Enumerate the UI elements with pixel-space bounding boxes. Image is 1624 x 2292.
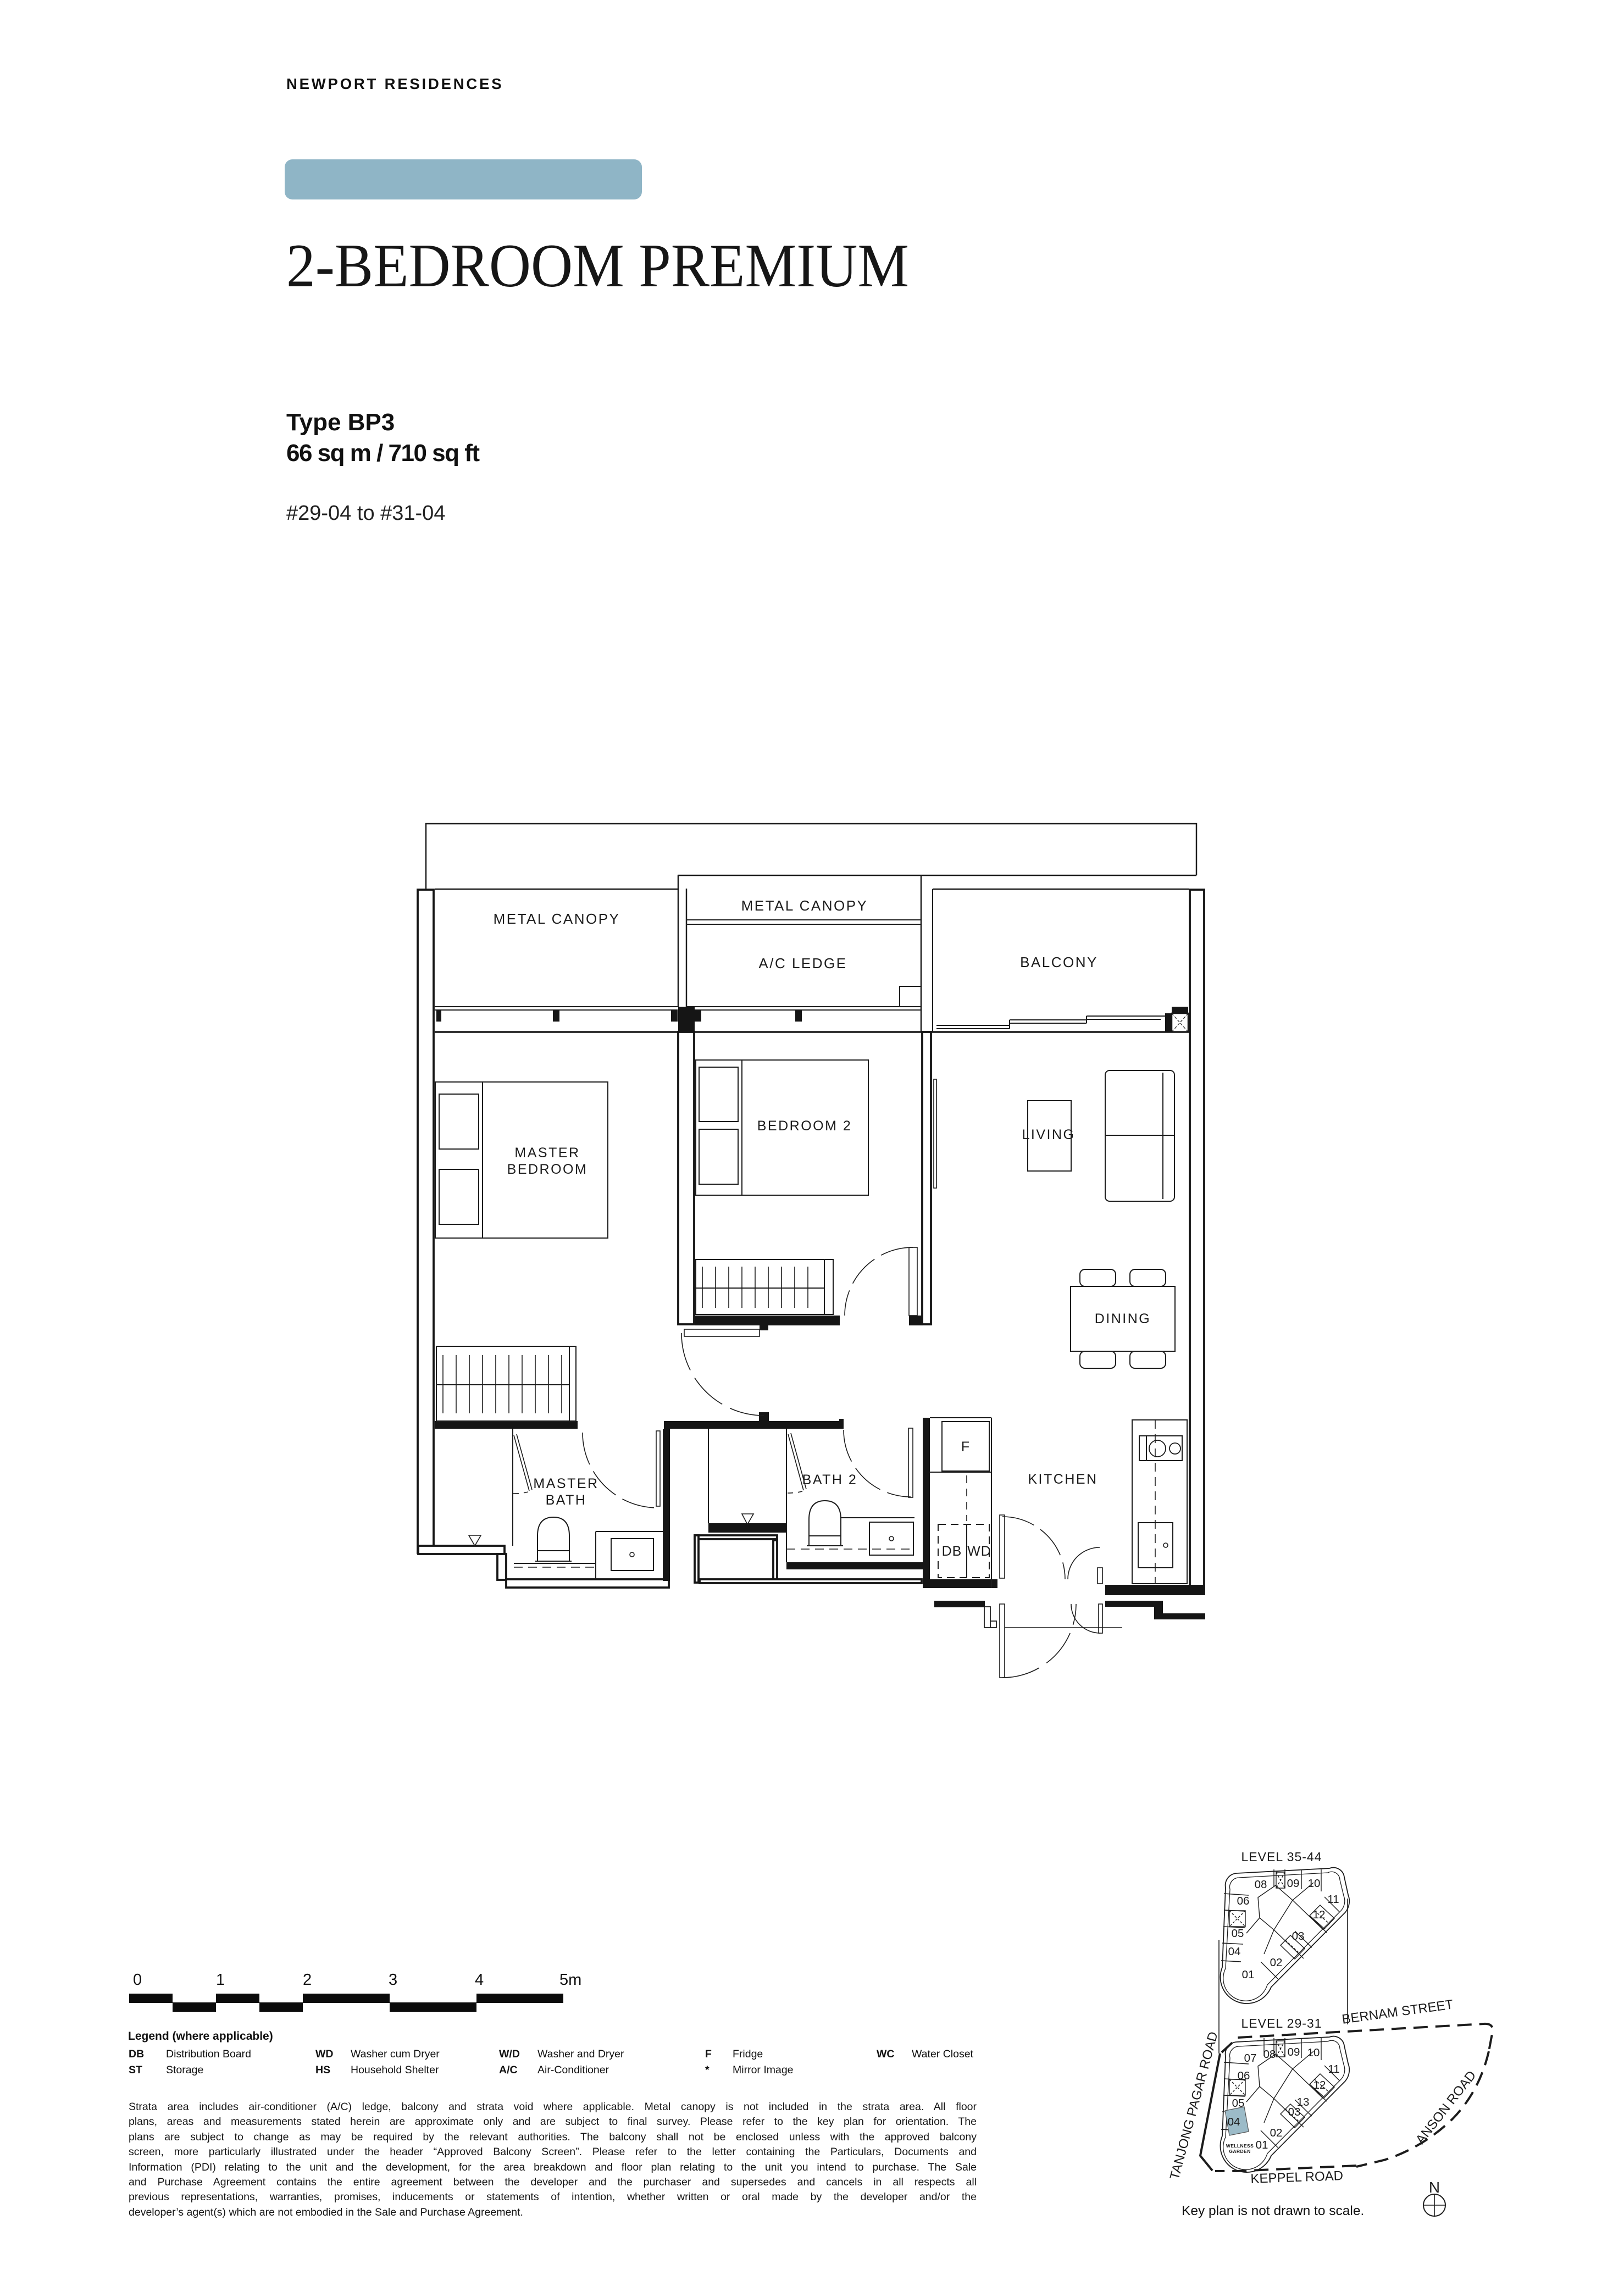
svg-text:1: 1: [216, 1971, 225, 1989]
svg-text:06: 06: [1238, 2069, 1250, 2082]
svg-text:KITCHEN: KITCHEN: [1028, 1472, 1098, 1487]
svg-text:01: 01: [1256, 2139, 1268, 2151]
svg-text:A/C LEDGE: A/C LEDGE: [758, 955, 847, 972]
svg-text:WELLNESS: WELLNESS: [1226, 2143, 1254, 2149]
svg-text:05: 05: [1232, 2097, 1245, 2110]
svg-text:BERNAM STREET: BERNAM STREET: [1341, 1997, 1454, 2027]
svg-text:BATH 2: BATH 2: [802, 1472, 858, 1488]
svg-text:12: 12: [1313, 1908, 1326, 1921]
svg-text:02: 02: [1270, 2127, 1283, 2139]
svg-text:MASTER: MASTER: [533, 1476, 598, 1491]
svg-text:09: 09: [1287, 1877, 1300, 1890]
svg-text:F: F: [961, 1439, 970, 1455]
svg-text:MASTER: MASTER: [514, 1145, 580, 1161]
svg-text:BATH: BATH: [546, 1492, 587, 1508]
svg-text:01: 01: [1242, 1968, 1255, 1981]
svg-text:08: 08: [1255, 1878, 1267, 1891]
svg-text:06: 06: [1237, 1895, 1250, 1907]
svg-text:10: 10: [1307, 2046, 1320, 2059]
svg-text:03: 03: [1288, 2106, 1301, 2118]
svg-text:11: 11: [1327, 1893, 1339, 1906]
svg-text:DINING: DINING: [1095, 1311, 1151, 1327]
svg-text:TANJONG PAGAR ROAD: TANJONG PAGAR ROAD: [1167, 2030, 1221, 2181]
svg-text:03: 03: [1292, 1930, 1305, 1943]
svg-text:12: 12: [1313, 2079, 1326, 2091]
svg-text:5m: 5m: [559, 1971, 581, 1989]
svg-text:3: 3: [389, 1971, 397, 1989]
svg-text:0: 0: [133, 1971, 142, 1989]
svg-text:BEDROOM 2: BEDROOM 2: [757, 1118, 852, 1134]
svg-text:LEVEL 35-44: LEVEL 35-44: [1241, 1850, 1322, 1864]
svg-text:09: 09: [1288, 2046, 1300, 2058]
svg-text:2: 2: [303, 1971, 312, 1989]
svg-text:DB: DB: [942, 1544, 962, 1559]
svg-text:LIVING: LIVING: [1022, 1127, 1076, 1142]
svg-text:N: N: [1429, 2179, 1440, 2196]
svg-text:04: 04: [1228, 1945, 1241, 1958]
svg-text:GARDEN: GARDEN: [1229, 2149, 1250, 2154]
svg-text:WD: WD: [967, 1544, 991, 1559]
svg-text:BEDROOM: BEDROOM: [507, 1162, 588, 1177]
svg-text:KEPPEL ROAD: KEPPEL ROAD: [1250, 2168, 1343, 2186]
svg-text:08: 08: [1263, 2048, 1276, 2061]
svg-text:10: 10: [1308, 1877, 1321, 1890]
svg-text:METAL CANOPY: METAL CANOPY: [741, 897, 868, 914]
svg-text:02: 02: [1270, 1956, 1283, 1969]
svg-text:07: 07: [1244, 2052, 1257, 2065]
svg-text:BALCONY: BALCONY: [1020, 954, 1098, 970]
svg-text:11: 11: [1328, 2063, 1339, 2075]
svg-text:METAL CANOPY: METAL CANOPY: [494, 911, 620, 927]
svg-text:ANSON ROAD: ANSON ROAD: [1413, 2068, 1479, 2147]
svg-text:05: 05: [1232, 1927, 1244, 1940]
svg-text:04: 04: [1228, 2116, 1240, 2128]
svg-text:4: 4: [475, 1971, 484, 1989]
svg-text:LEVEL 29-31: LEVEL 29-31: [1241, 2016, 1322, 2030]
